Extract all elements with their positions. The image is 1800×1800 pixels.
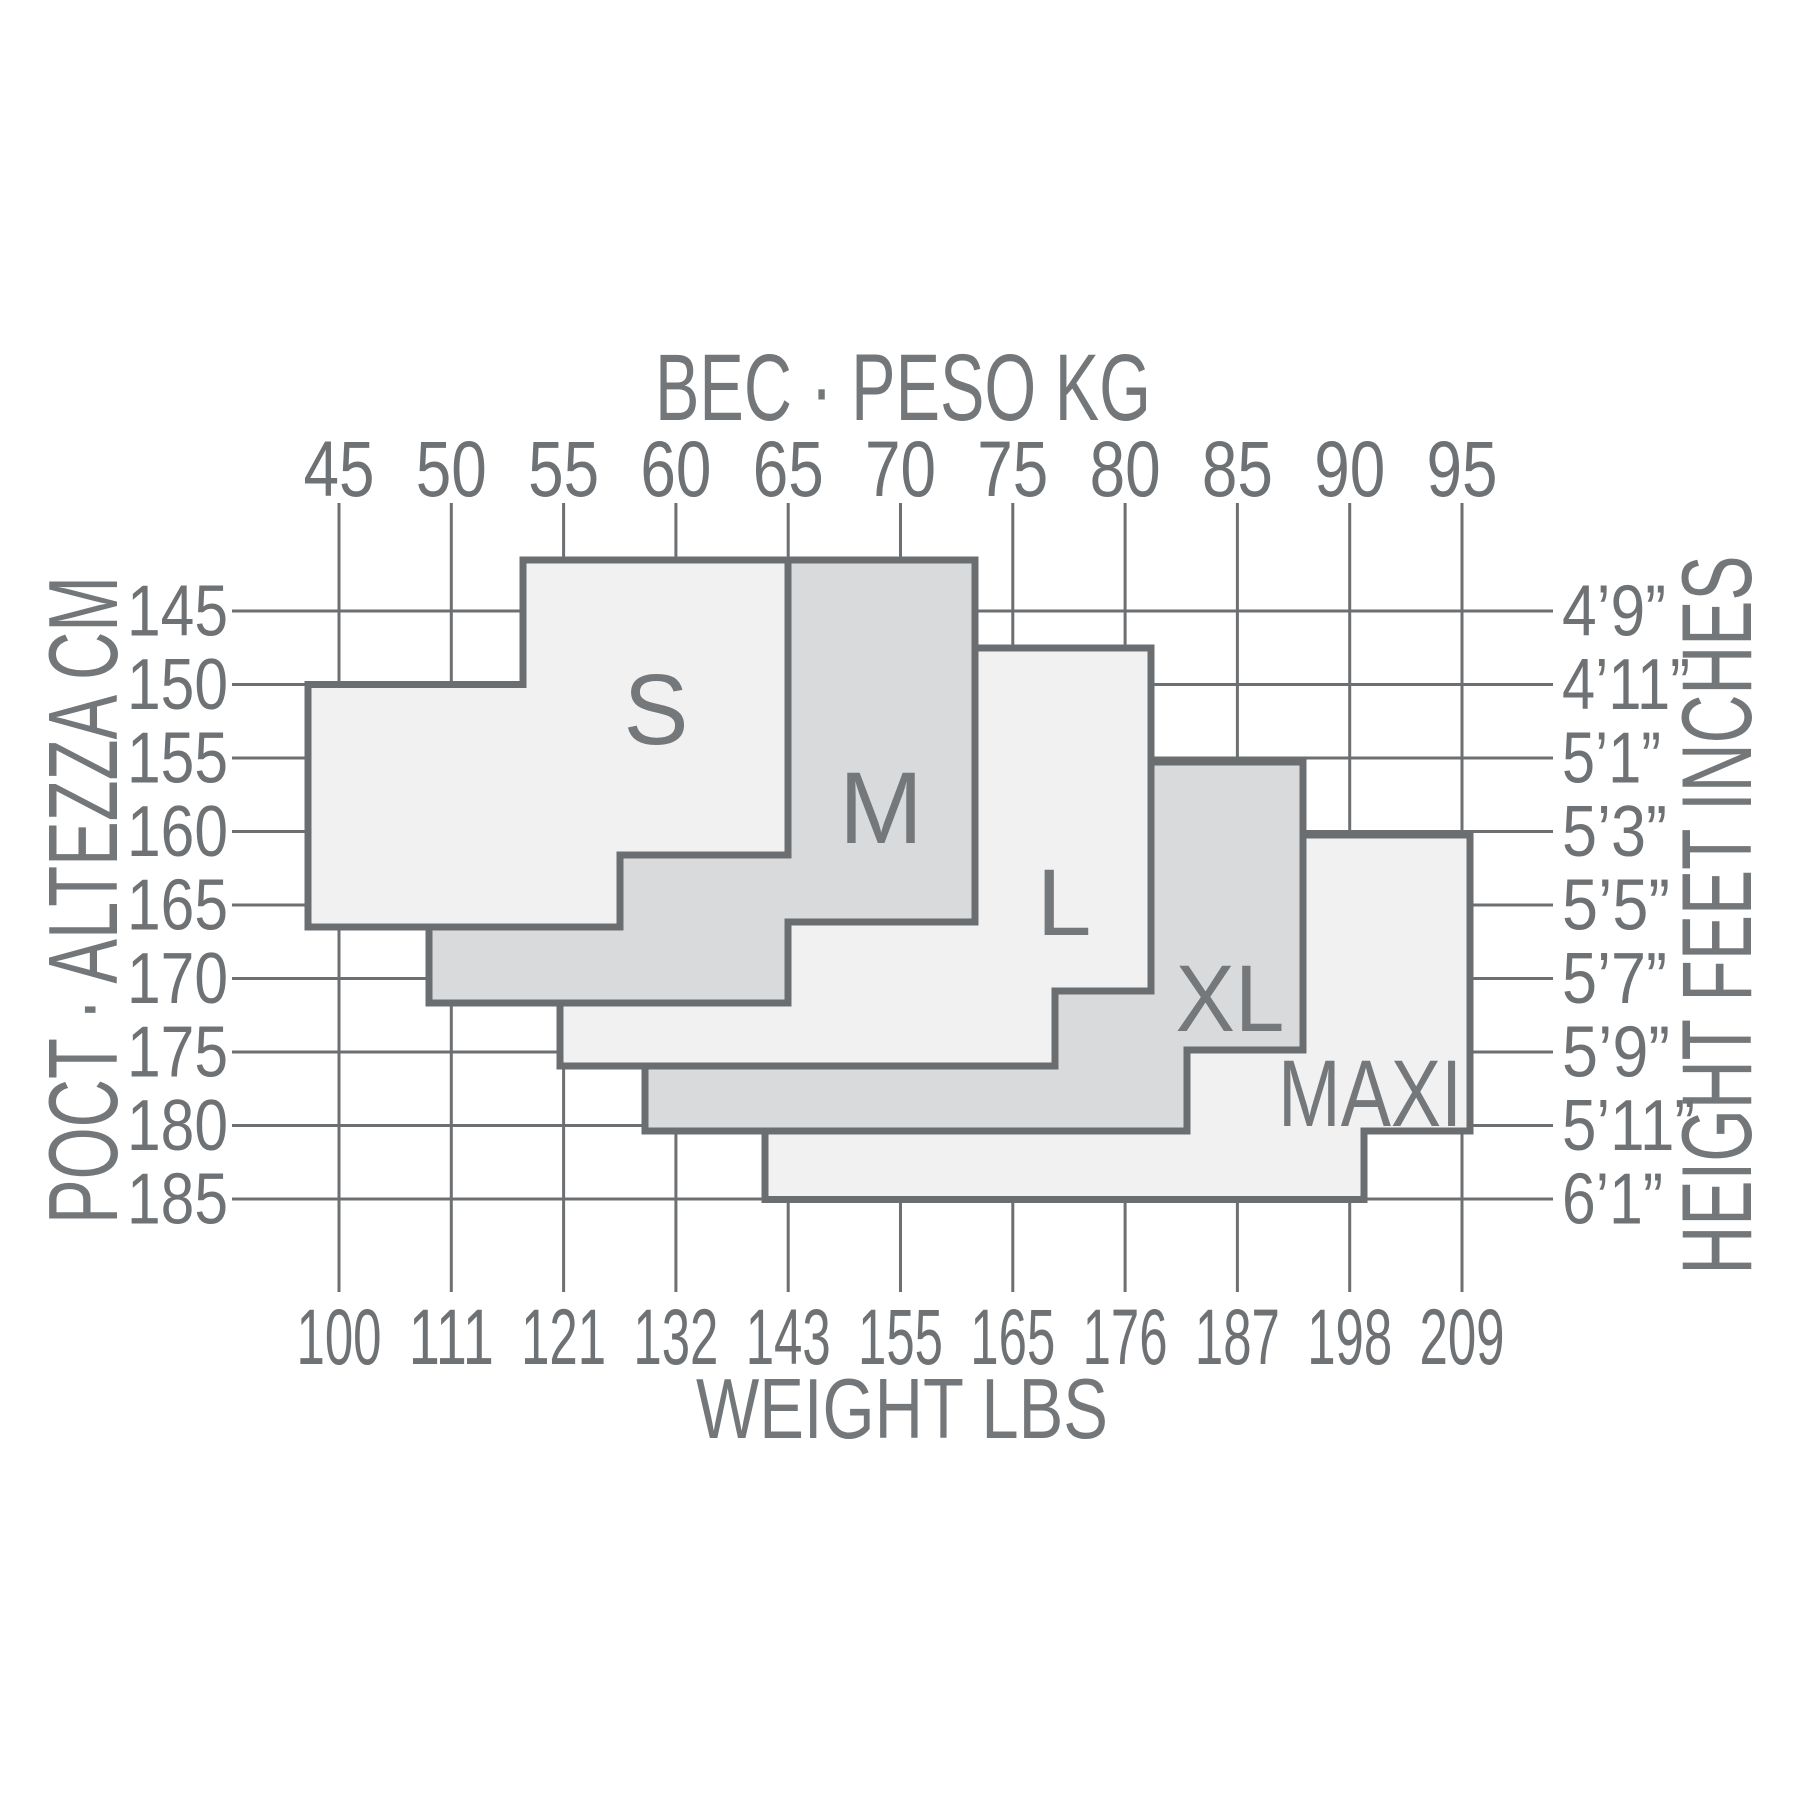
svg-text:155: 155 [127,719,228,799]
svg-text:55: 55 [528,424,599,513]
svg-text:5’3”: 5’3” [1562,792,1667,872]
svg-text:175: 175 [127,1013,228,1093]
svg-text:80: 80 [1090,424,1161,513]
svg-text:209: 209 [1420,1292,1505,1381]
svg-text:150: 150 [127,645,228,725]
svg-text:85: 85 [1202,424,1273,513]
svg-text:4’9”: 4’9” [1562,572,1666,652]
svg-text:6’1”: 6’1” [1562,1160,1663,1240]
svg-text:60: 60 [640,424,711,513]
svg-text:185: 185 [127,1160,228,1240]
svg-text:65: 65 [753,424,824,513]
svg-text:198: 198 [1307,1292,1392,1381]
svg-text:S: S [624,654,689,766]
svg-text:170: 170 [127,939,228,1019]
svg-text:111: 111 [409,1292,494,1381]
svg-text:160: 160 [127,792,228,872]
svg-text:5’9”: 5’9” [1562,1013,1670,1093]
svg-text:XL: XL [1176,946,1285,1052]
svg-text:M: M [839,751,923,865]
svg-text:5’11”: 5’11” [1562,1086,1695,1166]
svg-text:5’7”: 5’7” [1562,939,1667,1019]
svg-text:90: 90 [1314,424,1385,513]
svg-text:100: 100 [297,1292,382,1381]
svg-text:5’5”: 5’5” [1562,866,1670,946]
svg-text:5’1”: 5’1” [1562,719,1661,799]
svg-text:121: 121 [521,1292,606,1381]
svg-text:WEIGHT LBS: WEIGHT LBS [696,1362,1108,1457]
svg-text:50: 50 [416,424,487,513]
svg-text:MAXI: MAXI [1278,1041,1462,1147]
svg-text:POCT · ALTEZZA CM: POCT · ALTEZZA CM [28,576,138,1224]
svg-text:70: 70 [865,424,936,513]
svg-text:95: 95 [1427,424,1498,513]
svg-text:4’11”: 4’11” [1562,645,1690,725]
svg-text:187: 187 [1195,1292,1280,1381]
svg-text:165: 165 [127,866,228,946]
svg-text:75: 75 [977,424,1048,513]
svg-text:L: L [1037,850,1092,956]
svg-text:45: 45 [304,424,375,513]
svg-text:145: 145 [127,572,228,652]
svg-text:180: 180 [127,1086,228,1166]
